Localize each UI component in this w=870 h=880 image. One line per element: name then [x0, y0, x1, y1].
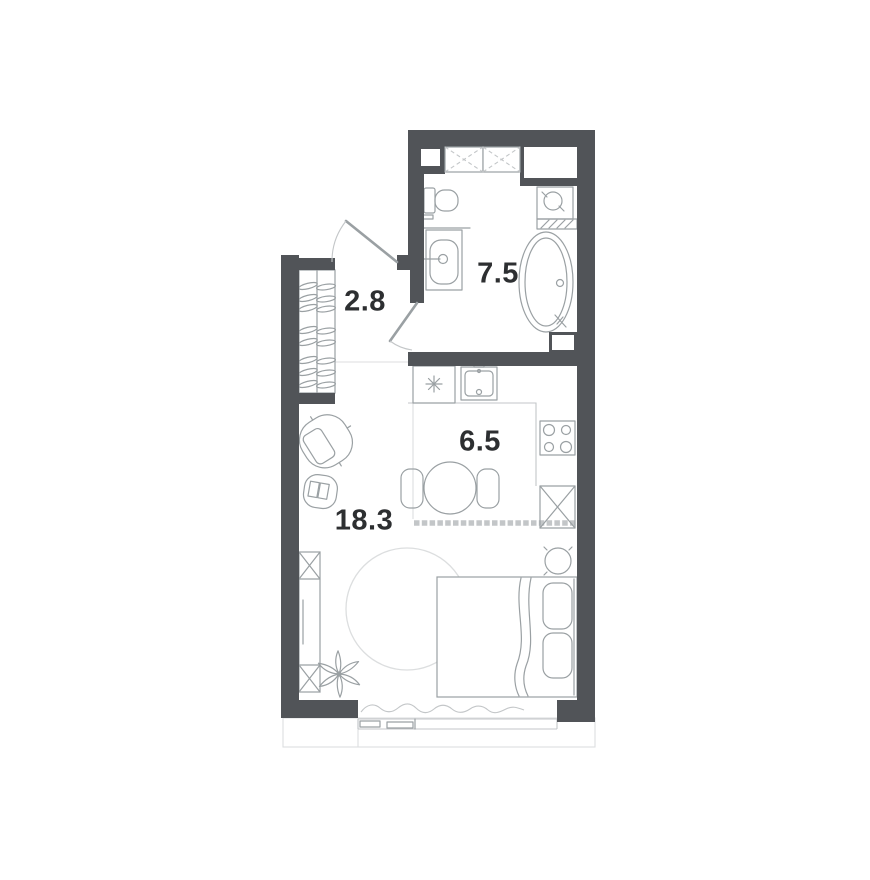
ventilation-shaft	[445, 147, 520, 172]
room-area-label-bathroom: 7.5	[477, 258, 519, 291]
room-area-label-kitchen: 6.5	[459, 426, 501, 459]
pouf-with-book	[302, 473, 339, 510]
hallway-wardrobe-with-hangers	[298, 270, 336, 393]
wardrobe-column	[299, 552, 320, 692]
dining-table	[424, 462, 476, 514]
floor-plan: 2.8 7.5 6.5 18.3	[0, 0, 870, 880]
washing-machine	[537, 187, 577, 229]
room-area-label-living-room: 18.3	[335, 505, 393, 538]
armchair	[289, 401, 366, 479]
balcony-sill	[283, 718, 595, 747]
entrance-door	[332, 221, 397, 262]
stove	[540, 421, 575, 455]
dishwasher-star	[413, 366, 455, 403]
nightstand	[544, 547, 572, 575]
double-bed	[437, 577, 577, 697]
room-area-label-hallway: 2.8	[344, 286, 386, 319]
bathroom-door	[390, 303, 417, 350]
bathtub	[519, 232, 573, 332]
washbasin	[424, 228, 470, 290]
kitchen-sink	[461, 362, 497, 400]
curtain	[361, 704, 524, 713]
floor-plan-drawing	[0, 0, 870, 880]
toilet	[423, 188, 458, 219]
plant	[318, 651, 361, 698]
window	[358, 719, 557, 729]
